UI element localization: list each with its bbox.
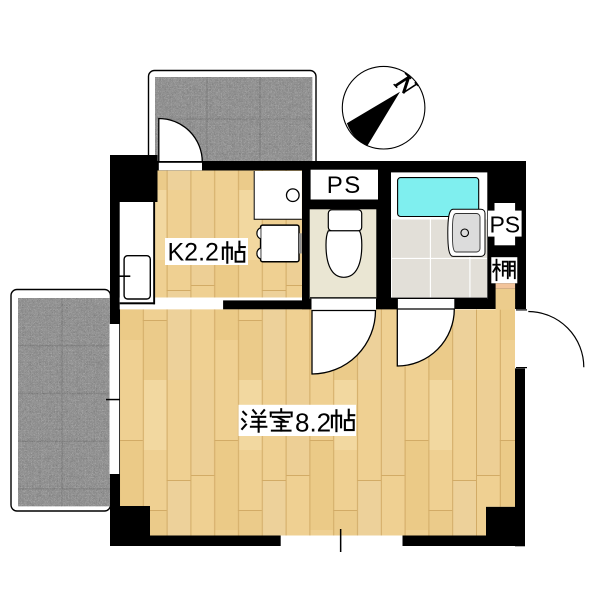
svg-text:PS: PS (489, 212, 520, 238)
svg-text:8.2: 8.2 (295, 408, 331, 438)
svg-text:PS: PS (327, 172, 362, 199)
svg-text:K2.2: K2.2 (168, 239, 219, 267)
